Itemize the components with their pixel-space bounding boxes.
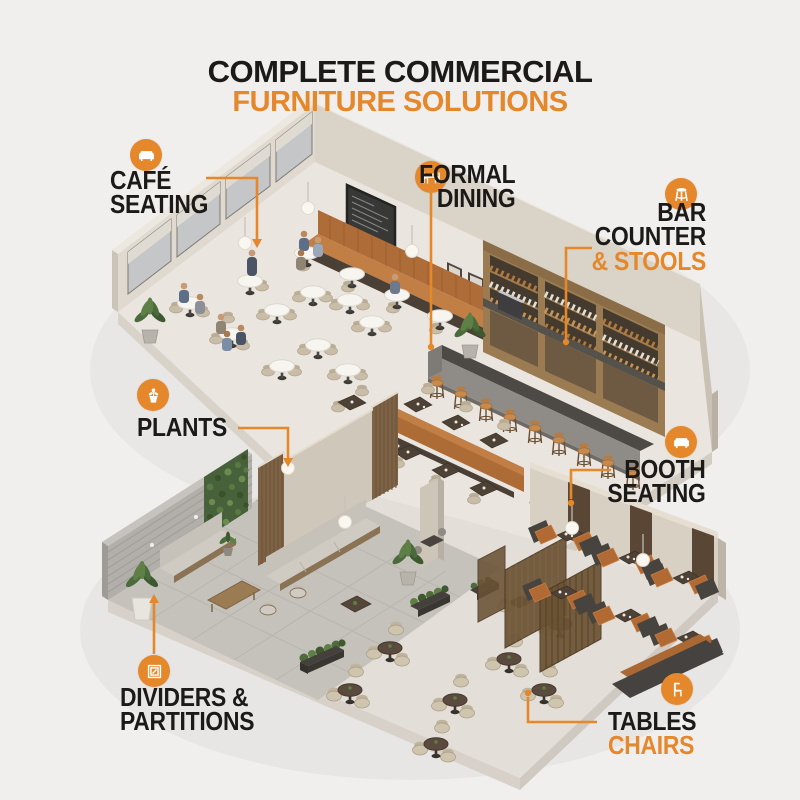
divider-panel-icon: [145, 662, 164, 681]
title-line-1: COMPLETE COMMERCIAL: [0, 56, 800, 88]
label-tables-chairs: TABLES CHAIRS: [608, 709, 708, 758]
label-formal-dining: FORMAL DINING: [406, 162, 515, 211]
dividers-line2: PARTITIONS: [120, 709, 254, 733]
plants-badge: [137, 379, 169, 411]
chair-icon: [668, 680, 687, 699]
formal-dining-line2: DINING: [419, 186, 515, 210]
plants-line1: PLANTS: [137, 415, 227, 439]
title-line-2: FURNITURE SOLUTIONS: [0, 88, 800, 118]
label-booth-seating: BOOTH SEATING: [594, 457, 706, 506]
sofa-icon: [672, 433, 691, 452]
label-cafe-seating: CAFÉ SEATING: [110, 168, 222, 217]
tables-chairs-line2: CHAIRS: [608, 733, 696, 757]
page-title: COMPLETE COMMERCIAL FURNITURE SOLUTIONS: [0, 56, 800, 117]
tables-chairs-badge: [661, 673, 693, 705]
cafe-seating-line2: SEATING: [110, 192, 208, 216]
potted-plant-icon: [144, 386, 163, 405]
infographic-page: COMPLETE COMMERCIAL FURNITURE SOLUTIONS: [0, 0, 800, 800]
label-plants: PLANTS: [137, 415, 239, 439]
sofa-icon: [137, 146, 156, 165]
label-dividers-partitions: DIVIDERS & PARTITIONS: [120, 685, 273, 734]
bar-counter-line3: & STOOLS: [592, 249, 706, 273]
label-bar-counter: BAR COUNTER & STOOLS: [576, 200, 706, 273]
booth-seating-line2: SEATING: [608, 481, 706, 505]
